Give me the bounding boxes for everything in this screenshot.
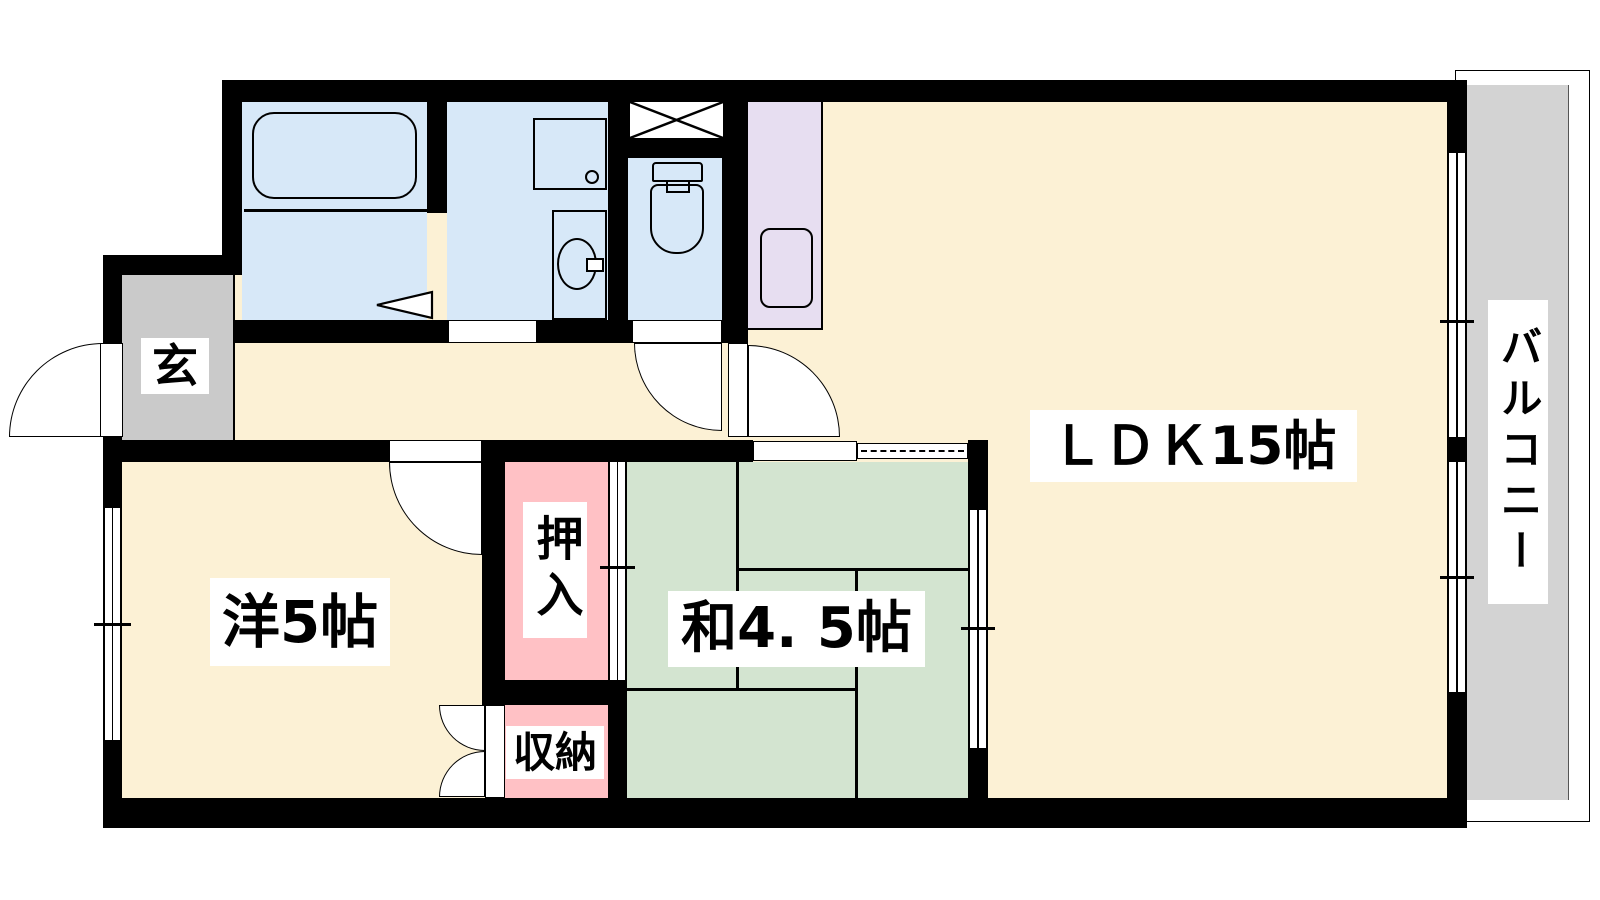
wall-segment (608, 102, 628, 320)
oshiire-fusuma-sliding-door (608, 462, 627, 680)
bath-door-triangle (375, 290, 435, 321)
toilet-bowl (650, 184, 704, 254)
oshiire-label: 押入 (523, 502, 587, 638)
western-room-label: 洋5帖 (210, 578, 390, 666)
wall-segment (1447, 80, 1467, 153)
wall-segment (968, 748, 988, 798)
wall-segment (103, 440, 389, 462)
japanese-room-label: 和4. 5帖 (668, 591, 925, 667)
wall-segment (427, 102, 447, 213)
window-mullion (1447, 437, 1467, 462)
entrance-door-leaf (100, 343, 123, 437)
washroom-door-opening (448, 320, 537, 343)
japanese-room-sliding-door-solid (753, 441, 857, 461)
entrance-label: 玄 (141, 338, 209, 394)
wall-segment (537, 320, 632, 343)
wall-segment (222, 80, 1467, 102)
storage-door-leaf (485, 705, 505, 798)
wall-segment (1447, 692, 1467, 828)
tatami-line (627, 688, 858, 691)
wall-segment (103, 798, 1467, 828)
wall-segment (103, 255, 244, 275)
toilet-door-opening (632, 320, 722, 343)
window-tick (1440, 320, 1474, 323)
wall-segment (628, 138, 725, 158)
vanity-faucet (585, 170, 599, 184)
wall-segment (482, 680, 627, 705)
wall-segment (482, 440, 753, 462)
japanese-room-sliding-door-dashed (857, 443, 968, 459)
entrance-step-line (233, 275, 235, 440)
balcony-label: バルコニー (1488, 300, 1548, 604)
wall-segment (103, 275, 122, 343)
window-tick (600, 566, 635, 569)
wall-segment (222, 320, 450, 343)
toilet-tank (652, 162, 703, 182)
storage-label: 収納 (506, 726, 604, 779)
ldk-balcony-window-upper (1447, 153, 1467, 437)
window-tick (961, 627, 995, 630)
kitchen-sink (760, 228, 813, 308)
wall-segment (608, 680, 627, 798)
western-room-door-opening (389, 440, 482, 462)
outside-area (98, 76, 222, 255)
entrance-door-swing (9, 343, 103, 437)
window-tick (1440, 576, 1474, 579)
washing-machine-tap (586, 258, 604, 272)
shaft-x-icon (628, 100, 725, 140)
ldk-label: ＬＤＫ15帖 (1030, 410, 1357, 482)
bathtub (252, 112, 417, 199)
window-tick (94, 623, 131, 626)
floor-plan: 玄 洋5帖 押入 収納 和4. 5帖 ＬＤＫ15帖 バルコニー (0, 0, 1600, 900)
wall-segment (722, 102, 748, 343)
bath-partition-line (244, 209, 427, 212)
wall-segment (968, 440, 988, 510)
tatami-line (736, 568, 968, 571)
wall-segment (222, 80, 244, 275)
ldk-door-leaf (728, 343, 748, 437)
wall-segment (482, 462, 505, 705)
